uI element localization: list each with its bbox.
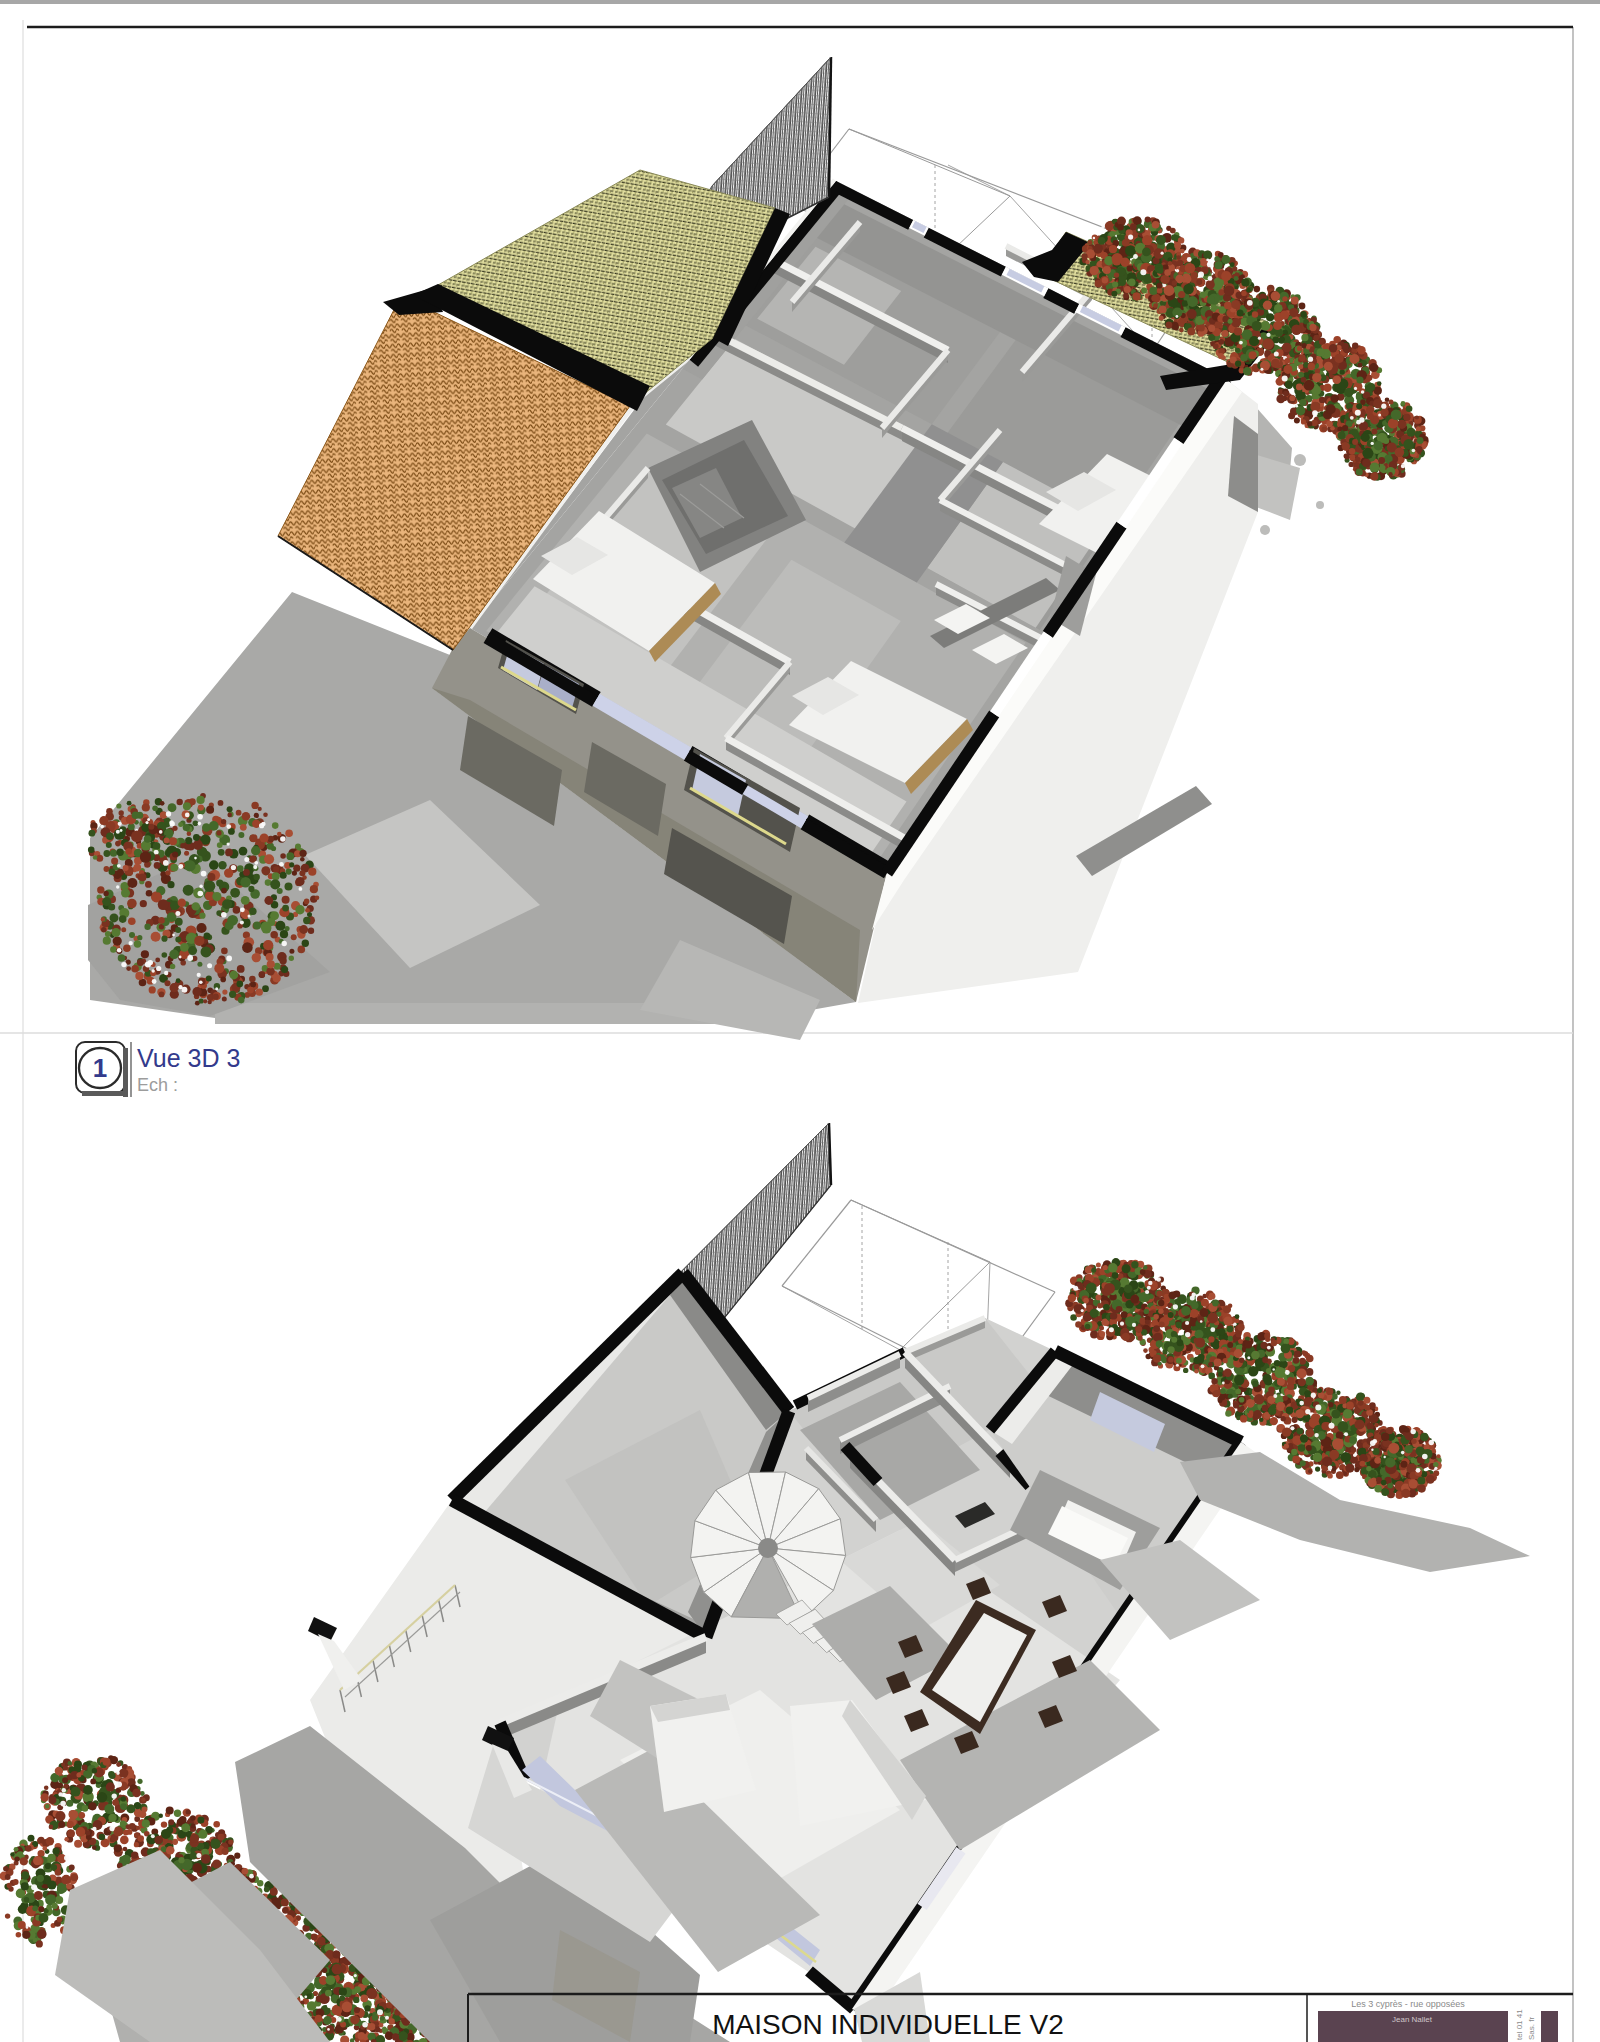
svg-text:Les 3 cyprès - rue opposées: Les 3 cyprès - rue opposées xyxy=(1351,1999,1465,2009)
svg-text:Vue 3D 3: Vue 3D 3 xyxy=(137,1044,240,1072)
svg-text:1: 1 xyxy=(93,1053,107,1083)
svg-text:Ech :: Ech : xyxy=(137,1075,178,1095)
svg-text:tel 01 41: tel 01 41 xyxy=(1515,2009,1524,2040)
svg-text:Sas. fr: Sas. fr xyxy=(1527,2017,1536,2040)
svg-text:MAISON INDIVIDUELLE V2: MAISON INDIVIDUELLE V2 xyxy=(712,2009,1064,2040)
svg-text:Jean Nallet: Jean Nallet xyxy=(1392,2015,1433,2024)
